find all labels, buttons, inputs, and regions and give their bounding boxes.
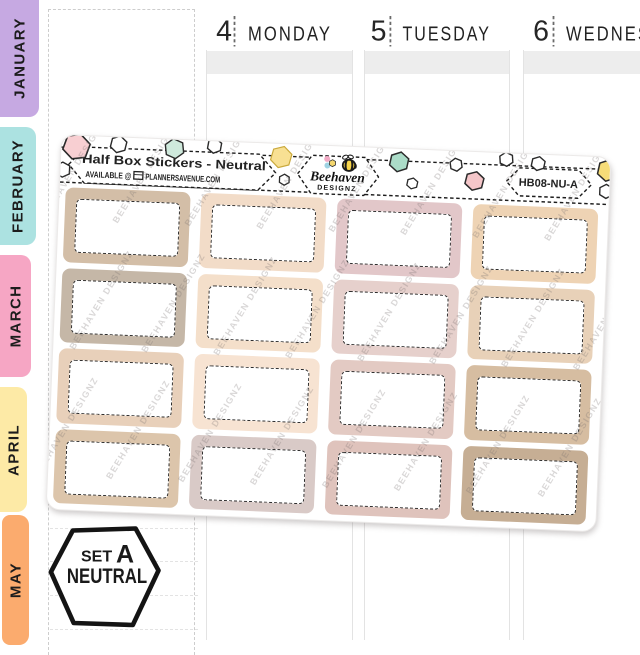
svg-text:5: 5 bbox=[371, 15, 387, 47]
svg-text:TUESDAY: TUESDAY bbox=[403, 23, 492, 45]
svg-text:A: A bbox=[116, 540, 134, 568]
svg-text:NEUTRAL: NEUTRAL bbox=[67, 565, 148, 588]
svg-text:WEDNESDAY: WEDNESDAY bbox=[566, 23, 640, 45]
svg-text:6: 6 bbox=[533, 15, 549, 47]
svg-text:SET: SET bbox=[81, 548, 112, 565]
svg-text:MONDAY: MONDAY bbox=[248, 23, 332, 45]
svg-text:4: 4 bbox=[216, 15, 232, 47]
